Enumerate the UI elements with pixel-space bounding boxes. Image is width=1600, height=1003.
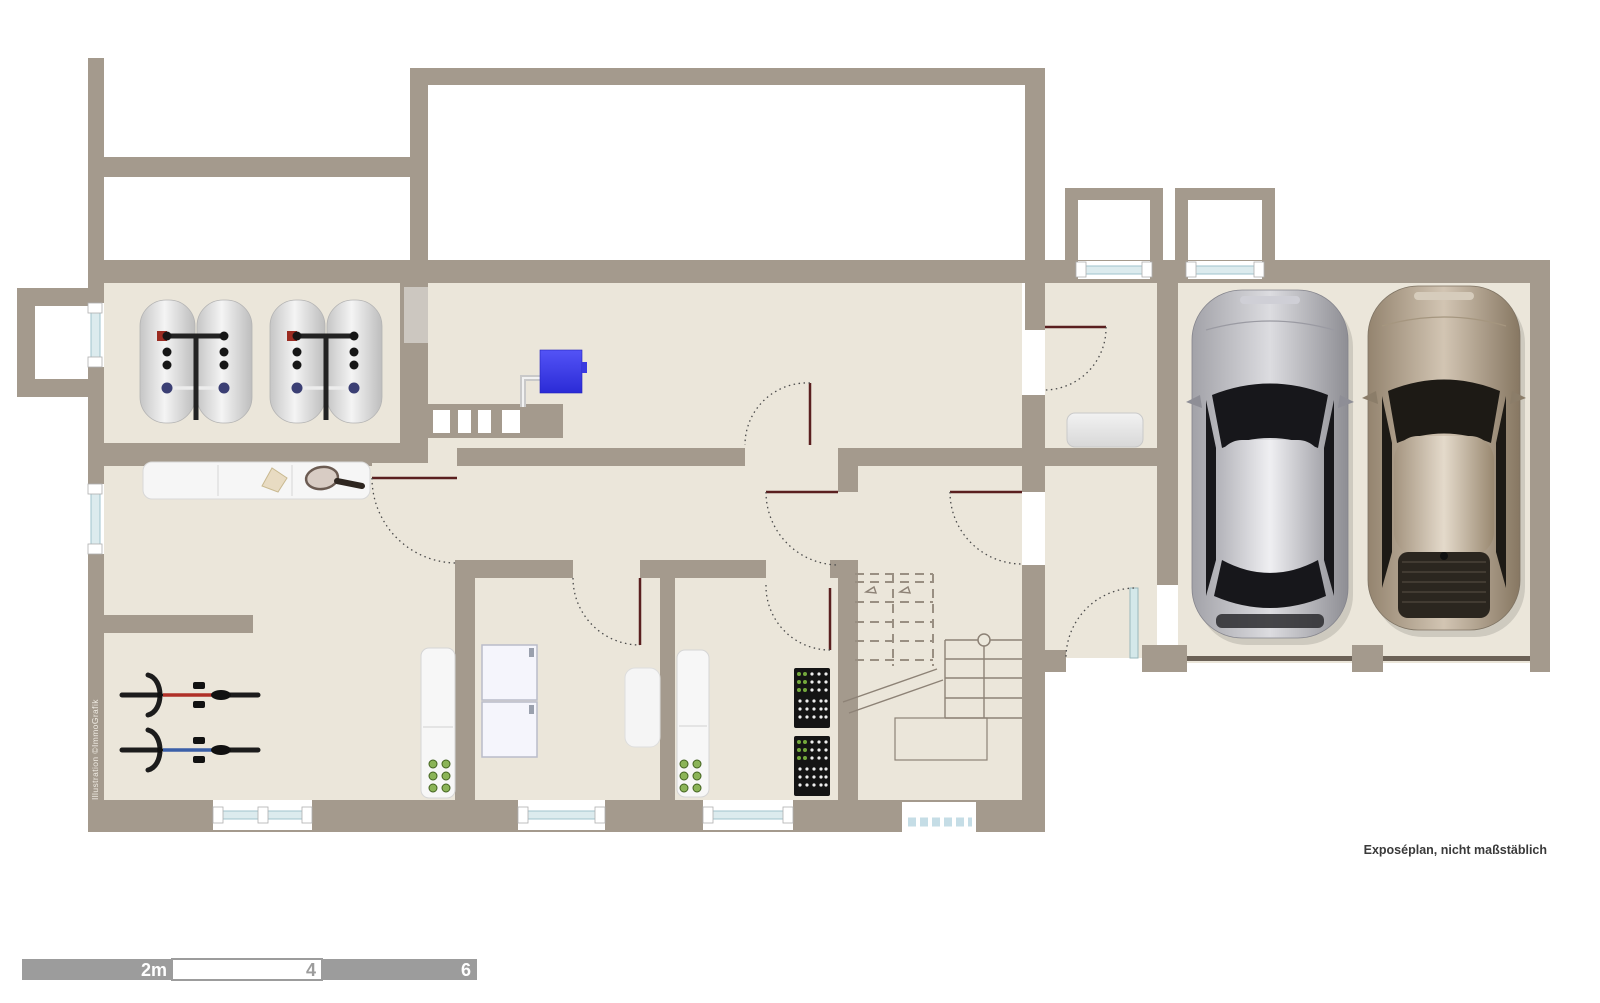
scale-label-6: 6 (461, 960, 471, 980)
crate-stack-2 (794, 736, 830, 796)
wall-niche (104, 615, 253, 633)
crate-stack-1 (794, 668, 830, 728)
window-bottom-2 (518, 800, 605, 830)
window-bottom-1 (213, 800, 312, 830)
small-table (1067, 413, 1143, 447)
floor-plan-page: 2m 4 6 Exposéplan, nicht maßstäblich Ill… (0, 0, 1600, 1003)
chimney-flues (425, 404, 563, 438)
wall-top-left (88, 157, 410, 177)
window-shaft-2 (1186, 261, 1264, 279)
scale-label-2m: 2m (141, 960, 167, 980)
storage-cabinet-2 (677, 650, 709, 797)
sideboard (143, 462, 370, 499)
wall-main-top (104, 260, 1550, 283)
wall-courtyard-right (1025, 68, 1045, 330)
wall-courtyard-left (410, 68, 428, 280)
window-shaft-1 (1076, 261, 1152, 279)
window-glass-block (902, 802, 976, 838)
scale-bar: 2m 4 6 (22, 959, 477, 980)
garage-door-line-1 (1187, 656, 1352, 661)
storage-cabinet-1 (421, 648, 455, 798)
wall-garage-right (1530, 260, 1550, 672)
floor-plan-drawing: 2m 4 6 Exposéplan, nicht maßstäblich Ill… (0, 0, 1600, 1003)
car-silver (1186, 290, 1354, 645)
car-beige (1362, 286, 1526, 637)
wall-garage-left (1157, 283, 1178, 585)
door-tank-room (404, 287, 428, 343)
scale-segment-3 (322, 959, 477, 980)
car-beige-rear-window (1398, 552, 1490, 618)
window-left-2 (88, 484, 104, 554)
illustration-credit: Illustration ©ImmoGrafik (90, 699, 100, 800)
garage-door-line-2 (1383, 656, 1530, 661)
window-bottom-3 (703, 800, 793, 830)
wall-courtyard-top (410, 68, 1043, 85)
scale-label-4: 4 (306, 960, 316, 980)
window-left-1 (88, 303, 104, 367)
small-cabinet (625, 668, 660, 747)
plan-disclaimer-note: Exposéplan, nicht maßstäblich (1364, 843, 1547, 857)
window-shafts (1065, 188, 1275, 264)
scale-segment-2 (172, 959, 322, 980)
